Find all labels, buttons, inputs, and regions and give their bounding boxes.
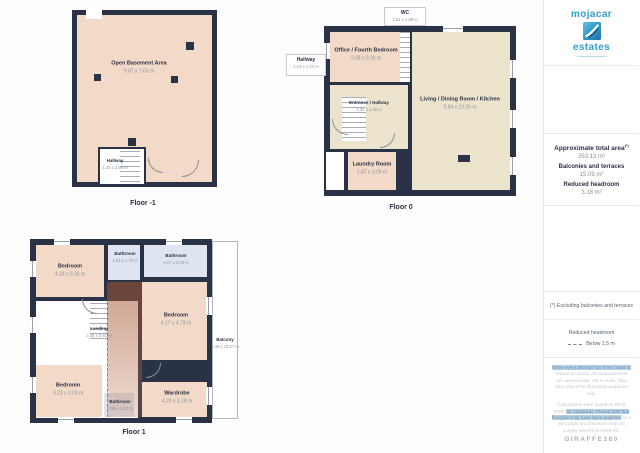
logo-tagline-rule: [577, 56, 607, 57]
sidebar-spacer: [544, 66, 639, 134]
giraffe360-logo: GIRAFFE360: [544, 436, 639, 443]
disclaimer-text: ensure accuracy, all measurements are ap…: [555, 371, 627, 395]
room-name: Landing: [86, 326, 111, 332]
room-name: Bedroom: [53, 383, 83, 390]
room-label-entrance: Entrance / Hallway 2.30 x 4.48 m: [349, 100, 389, 112]
dashed-line-swatch: [568, 344, 582, 345]
callout-wc: WC 1.52 x 1.89 m: [384, 7, 426, 26]
stat-label-text: Approximate total area: [554, 145, 624, 152]
room-name: Wardrobe: [162, 391, 192, 398]
stat-label-headroom: Reduced headroom: [563, 182, 619, 188]
legend-row: Below 1.5 m: [568, 341, 615, 347]
room-label-bedroom-1: Bedroom 4.28 x 3.36 m: [55, 264, 85, 279]
room-name: Bathroom: [112, 251, 137, 257]
room-dims: 4.20 x 3.18 m: [162, 399, 192, 406]
room-label-bathroom-3: Bathroom 2.06 x 2.02 m: [107, 399, 132, 411]
disclaimer-paragraph-2: Calculations were based on RICS IPMS 3C …: [552, 402, 631, 434]
logo-text-bottom: estates: [573, 42, 610, 53]
room-label-hallway: Hallway 1.20 x 2.98 m: [102, 158, 127, 170]
window: [176, 417, 192, 423]
sidebar-spacer: [544, 206, 639, 292]
highlighted-text: While every attempt has been made to: [552, 365, 631, 370]
room-dims: 3.08 x 3.26 m: [334, 56, 397, 63]
room-label-living: Living / Dining Room / Kitchen 5.94 x 10…: [420, 97, 500, 112]
logo-text-top: mojacar: [571, 9, 612, 20]
stairs: [400, 32, 410, 82]
stat-value-total-area: 253.13 m²: [578, 154, 605, 160]
room-fill-balcony: [212, 241, 238, 419]
room-name: Open Basement Area: [111, 61, 166, 68]
column: [94, 74, 101, 81]
legend-item-text: Below 1.5 m: [586, 341, 615, 347]
room-dims: 2.06 x 2.02 m: [107, 406, 132, 411]
room-label-wardrobe: Wardrobe 4.20 x 3.18 m: [162, 391, 192, 406]
room-name: Bathroom: [163, 253, 188, 259]
room-dims: 1.20 x 2.98 m: [102, 165, 127, 170]
room-label-bathroom-2: Bathroom 4.17 x 2.06 m: [163, 253, 188, 265]
window: [510, 110, 516, 128]
room-label-bedroom-2: Bedroom 4.17 x 4.73 m: [161, 313, 191, 328]
room-dims: 1.52 x 1.89 m: [385, 17, 425, 22]
room-dims: 4.17 x 4.73 m: [161, 321, 191, 328]
room-name: Office / Fourth Bedroom: [334, 48, 397, 55]
room-dims: 9.87 x 7.03 m: [111, 69, 166, 76]
room-dims: 2.30 x 4.48 m: [349, 107, 389, 112]
window: [443, 26, 463, 32]
stat-footnote-marker: (*): [625, 143, 629, 148]
room-name: Hallway: [287, 57, 325, 63]
room-dims: 3.23 x 3.24 m: [53, 391, 83, 398]
room-label-office: Office / Fourth Bedroom 3.08 x 3.26 m: [334, 48, 397, 63]
agency-logo: mojacar estates: [544, 0, 639, 66]
floorplan-floor-0: WC 1.52 x 1.89 m Hallway 1.13 x 1.22 m O…: [286, 5, 526, 220]
room-label-open-basement: Open Basement Area 9.87 x 7.03 m: [111, 61, 166, 76]
window: [30, 261, 36, 277]
footnote-box: (*) Excluding balconies and terraces: [544, 292, 639, 320]
area-stats: Approximate total area(*) 253.13 m² Balc…: [544, 134, 639, 206]
info-sidebar: mojacar estates Approximate total area(*…: [543, 0, 639, 453]
window: [30, 377, 36, 393]
room-name: Balcony: [211, 337, 239, 343]
room-dims: 1.92 x 1.75 m: [112, 258, 137, 263]
room-dims: 4.17 x 2.06 m: [163, 260, 188, 265]
mojacar-estates-logo-icon: [583, 22, 601, 40]
legend-box: Reduced headroom Below 1.5 m: [544, 320, 639, 358]
room-name: Bedroom: [161, 313, 191, 320]
window: [206, 387, 212, 405]
floor-label-0: Floor 0: [389, 204, 412, 211]
room-fill-storage: [326, 152, 344, 190]
room-name: Hallway: [102, 158, 127, 164]
stat-value-balconies: 15.05 m²: [580, 172, 604, 178]
kitchen-unit: [458, 155, 470, 162]
window: [30, 317, 36, 333]
room-label-bathroom-1: Bathroom 1.92 x 1.75 m: [112, 251, 137, 263]
stat-label-balconies: Balconies and terraces: [559, 164, 625, 170]
callout-hallway: Hallway 1.13 x 1.22 m: [286, 54, 326, 76]
room-dims: 4.28 x 3.36 m: [55, 272, 85, 279]
room-name: Bathroom: [107, 399, 132, 405]
room-dims: 2.87 x 3.28 m: [353, 170, 392, 177]
window: [206, 297, 212, 315]
room-dims: 5.94 x 10.26 m: [420, 105, 500, 112]
room-label-balcony: Balcony 1.46 x 10.27 m: [211, 337, 239, 349]
room-dims: 1.46 x 10.27 m: [211, 344, 239, 349]
room-name: Bedroom: [55, 264, 85, 271]
room-label-laundry: Laundry Room 2.87 x 3.28 m: [353, 162, 392, 177]
room-name: Laundry Room: [353, 162, 392, 169]
window: [54, 239, 70, 245]
disclaimer-paragraph-1: While every attempt has been made to ens…: [552, 365, 631, 397]
window: [166, 239, 182, 245]
stat-label-total-area: Approximate total area(*): [554, 143, 629, 152]
room-name: Living / Dining Room / Kitchen: [420, 97, 500, 104]
floor-label-minus1: Floor -1: [130, 200, 156, 207]
wall-stub: [128, 138, 136, 146]
window: [510, 60, 516, 78]
window: [510, 157, 516, 175]
room-dims: 1.13 x 1.22 m: [287, 64, 325, 69]
wall-stub: [186, 42, 194, 50]
room-dims: 2.05 x 5.51 m: [86, 333, 111, 338]
room-label-bedroom-3: Bedroom 3.23 x 3.24 m: [53, 383, 83, 398]
room-name: Entrance / Hallway: [349, 100, 389, 106]
reduced-headroom-strip: [107, 282, 142, 417]
column: [171, 76, 178, 83]
footnote-text: (*) Excluding balconies and terraces: [550, 303, 633, 309]
room-label-landing: Landing 2.05 x 5.51 m: [86, 326, 111, 338]
floor-label-1: Floor 1: [122, 429, 145, 436]
stat-value-headroom: 3.18 m²: [581, 190, 601, 196]
legend-title: Reduced headroom: [569, 330, 615, 336]
window: [58, 417, 74, 423]
floorplan-floor-minus1: Open Basement Area 9.87 x 7.03 m Hallway…: [70, 8, 220, 213]
wall-notch: [86, 10, 102, 19]
floorplan-floor-1: Bedroom 4.28 x 3.36 m Bathroom 1.92 x 1.…: [28, 237, 243, 442]
room-name: WC: [385, 10, 425, 16]
disclaimer-box: While every attempt has been made to ens…: [544, 358, 639, 453]
